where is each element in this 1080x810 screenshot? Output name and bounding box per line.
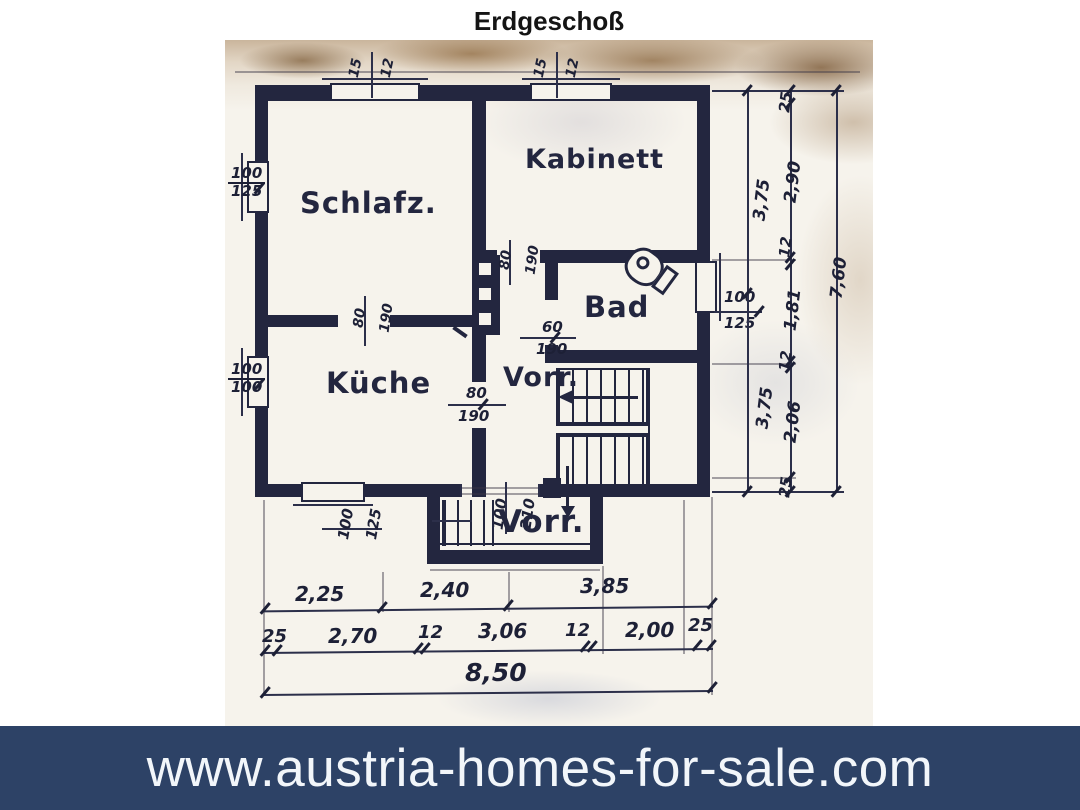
door-dim-label: 190 (458, 407, 489, 425)
wall-right-2 (697, 313, 710, 497)
website-url-text: www.austria-homes-for-sale.com (147, 738, 934, 799)
dim-label: 12 (565, 620, 590, 641)
window-dim-label: 125 (724, 314, 755, 332)
door-dim-line (448, 404, 506, 406)
dim-label: 3,06 (478, 619, 527, 643)
vestibule-step-edge (430, 569, 600, 571)
wall-schlafz-kueche-2 (390, 315, 472, 327)
room-label-kabinett: Kabinett (525, 144, 664, 175)
window-bottom-kueche (301, 482, 365, 502)
window-dim-line (556, 52, 558, 98)
wall-right-1 (697, 85, 710, 263)
staircase-lower-flight (556, 435, 648, 487)
wall-kueche-vorr-1 (472, 335, 486, 382)
page-title: Erdgeschoß (225, 6, 873, 37)
chimney-flue (479, 313, 491, 325)
dim-label: 2,70 (328, 624, 377, 648)
dim-label: 25 (775, 476, 795, 499)
window-top-kabinett (530, 83, 612, 101)
window-dim-line (371, 52, 373, 98)
window-top-schlafz (330, 83, 420, 101)
window-sill-line (322, 78, 428, 80)
dim-extension (683, 500, 685, 654)
step-dim-tick-line (432, 520, 472, 522)
window-sill-line (293, 504, 373, 506)
room-label-kueche: Küche (326, 366, 431, 400)
dim-label: 25 (775, 91, 795, 114)
wall-vestibule-right (590, 497, 603, 564)
wall-bad-left-1 (545, 263, 558, 300)
wall-left-2 (255, 213, 268, 358)
room-label-schlafzimmer: Schlafz. (300, 186, 437, 220)
wall-schlafz-kabinett (472, 101, 486, 255)
dim-label: 2,25 (295, 582, 344, 606)
door-jamb (538, 484, 540, 497)
door-threshold (462, 487, 538, 489)
dim-label: 3,85 (580, 574, 629, 598)
door-jamb (460, 484, 462, 497)
room-label-vorraum-upper: Vorr. (503, 362, 579, 393)
dim-label: 25 (688, 615, 713, 636)
wall-schlafz-kueche-1 (268, 315, 338, 327)
screenshot-root: Erdgeschoß 15 12 (0, 0, 1080, 810)
stair-direction-arrow (572, 396, 638, 399)
room-label-vorraum-lower: Vorr. (498, 504, 585, 540)
dim-label: 12 (775, 236, 795, 259)
room-label-bad: Bad (584, 290, 649, 324)
wall-left-1 (255, 85, 268, 163)
dim-label: 12 (418, 622, 443, 643)
window-right-bad (695, 261, 717, 313)
door-dim-label: 80 (350, 307, 369, 329)
staircase-edge-line (648, 368, 650, 487)
dim-extension (263, 500, 265, 695)
wall-bottom-1 (255, 484, 303, 497)
wall-top-2 (420, 85, 530, 101)
staircase-landing-lines (556, 424, 648, 435)
door-dim-line (520, 337, 576, 339)
door-threshold (462, 493, 538, 495)
window-sill-line (522, 78, 620, 80)
dim-label: 2,00 (625, 618, 674, 642)
dim-extension (712, 259, 796, 261)
dim-label-total-width: 8,50 (465, 658, 527, 687)
website-banner: www.austria-homes-for-sale.com (0, 726, 1080, 810)
wall-vestibule-bottom (427, 551, 603, 564)
chimney-flue (479, 263, 491, 275)
entrance-steps (442, 500, 494, 546)
wall-kabinett-bottom-stub (486, 250, 497, 263)
window-dim-label: 100125 (228, 166, 265, 200)
dim-label: 12 (775, 350, 795, 373)
dim-label: 25 (262, 626, 287, 647)
door-dim-label: 80 (496, 249, 515, 271)
stair-down-arrow (566, 466, 569, 508)
window-dim-label: 100100 (228, 362, 265, 396)
chimney-flue (479, 288, 491, 300)
wall-bottom-2 (365, 484, 460, 497)
wall-vestibule-left (427, 497, 440, 557)
entrance-step-edge (440, 543, 590, 552)
dim-extension (711, 497, 713, 695)
wall-top-3 (612, 85, 710, 101)
dim-label: 2,40 (420, 578, 469, 602)
